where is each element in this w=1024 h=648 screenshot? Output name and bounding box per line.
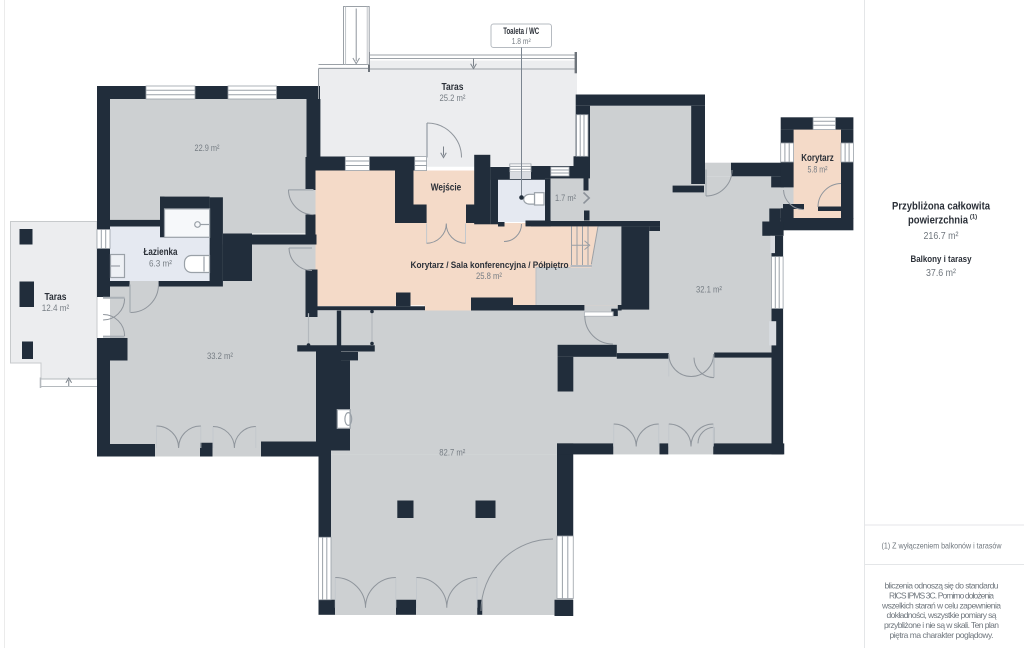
svg-text:dokładności, wszystkie pomiary: dokładności, wszystkie pomiary są	[887, 610, 997, 620]
svg-text:Toaleta / WC: Toaleta / WC	[503, 26, 539, 36]
svg-text:przybliżone i nie są w skali.: przybliżone i nie są w skali. Ten plan	[884, 620, 999, 630]
svg-text:216.7 m²: 216.7 m²	[924, 231, 960, 242]
svg-text:32.1 m²: 32.1 m²	[696, 285, 722, 296]
svg-text:wszelkich starań w celu zapewn: wszelkich starań w celu zapewnienia	[881, 600, 1001, 610]
svg-text:Korytarz / Sala konferencyjna: Korytarz / Sala konferencyjna / Półpiętr…	[411, 260, 569, 271]
svg-text:Łazienka: Łazienka	[144, 247, 178, 258]
svg-text:RICS IPMS 3C. Pomimo dołożenia: RICS IPMS 3C. Pomimo dołożenia	[889, 590, 994, 600]
svg-text:Taras: Taras	[442, 82, 464, 93]
svg-text:Taras: Taras	[45, 292, 67, 303]
svg-text:piętra ma charakter poglądowy.: piętra ma charakter poglądowy.	[890, 630, 994, 640]
svg-text:powierzchnia: powierzchnia	[908, 215, 969, 227]
svg-text:Korytarz: Korytarz	[801, 153, 834, 164]
svg-text:25.8 m²: 25.8 m²	[476, 271, 502, 282]
svg-text:Wejście: Wejście	[431, 183, 462, 194]
svg-text:12.4 m²: 12.4 m²	[42, 303, 70, 314]
svg-text:82.7 m²: 82.7 m²	[439, 448, 465, 459]
svg-text:1.8 m²: 1.8 m²	[512, 36, 531, 46]
svg-text:37.6 m²: 37.6 m²	[926, 268, 957, 279]
svg-text:(1): (1)	[970, 215, 977, 221]
svg-text:25.2 m²: 25.2 m²	[440, 93, 466, 104]
svg-text:33.2 m²: 33.2 m²	[207, 351, 233, 362]
svg-text:6.3 m²: 6.3 m²	[149, 259, 172, 270]
svg-text:bliczenia odnoszą się do stand: bliczenia odnoszą się do standardu	[885, 581, 999, 591]
svg-text:22.9 m²: 22.9 m²	[195, 143, 220, 154]
svg-text:Balkony i tarasy: Balkony i tarasy	[911, 254, 973, 265]
svg-text:Przybliżona całkowita: Przybliżona całkowita	[892, 200, 991, 212]
svg-text:5.8 m²: 5.8 m²	[808, 165, 828, 176]
svg-text:(1) Z wyłączeniem balkonów i t: (1) Z wyłączeniem balkonów i tarasów	[882, 541, 1003, 551]
svg-text:1.7 m²: 1.7 m²	[555, 193, 576, 204]
